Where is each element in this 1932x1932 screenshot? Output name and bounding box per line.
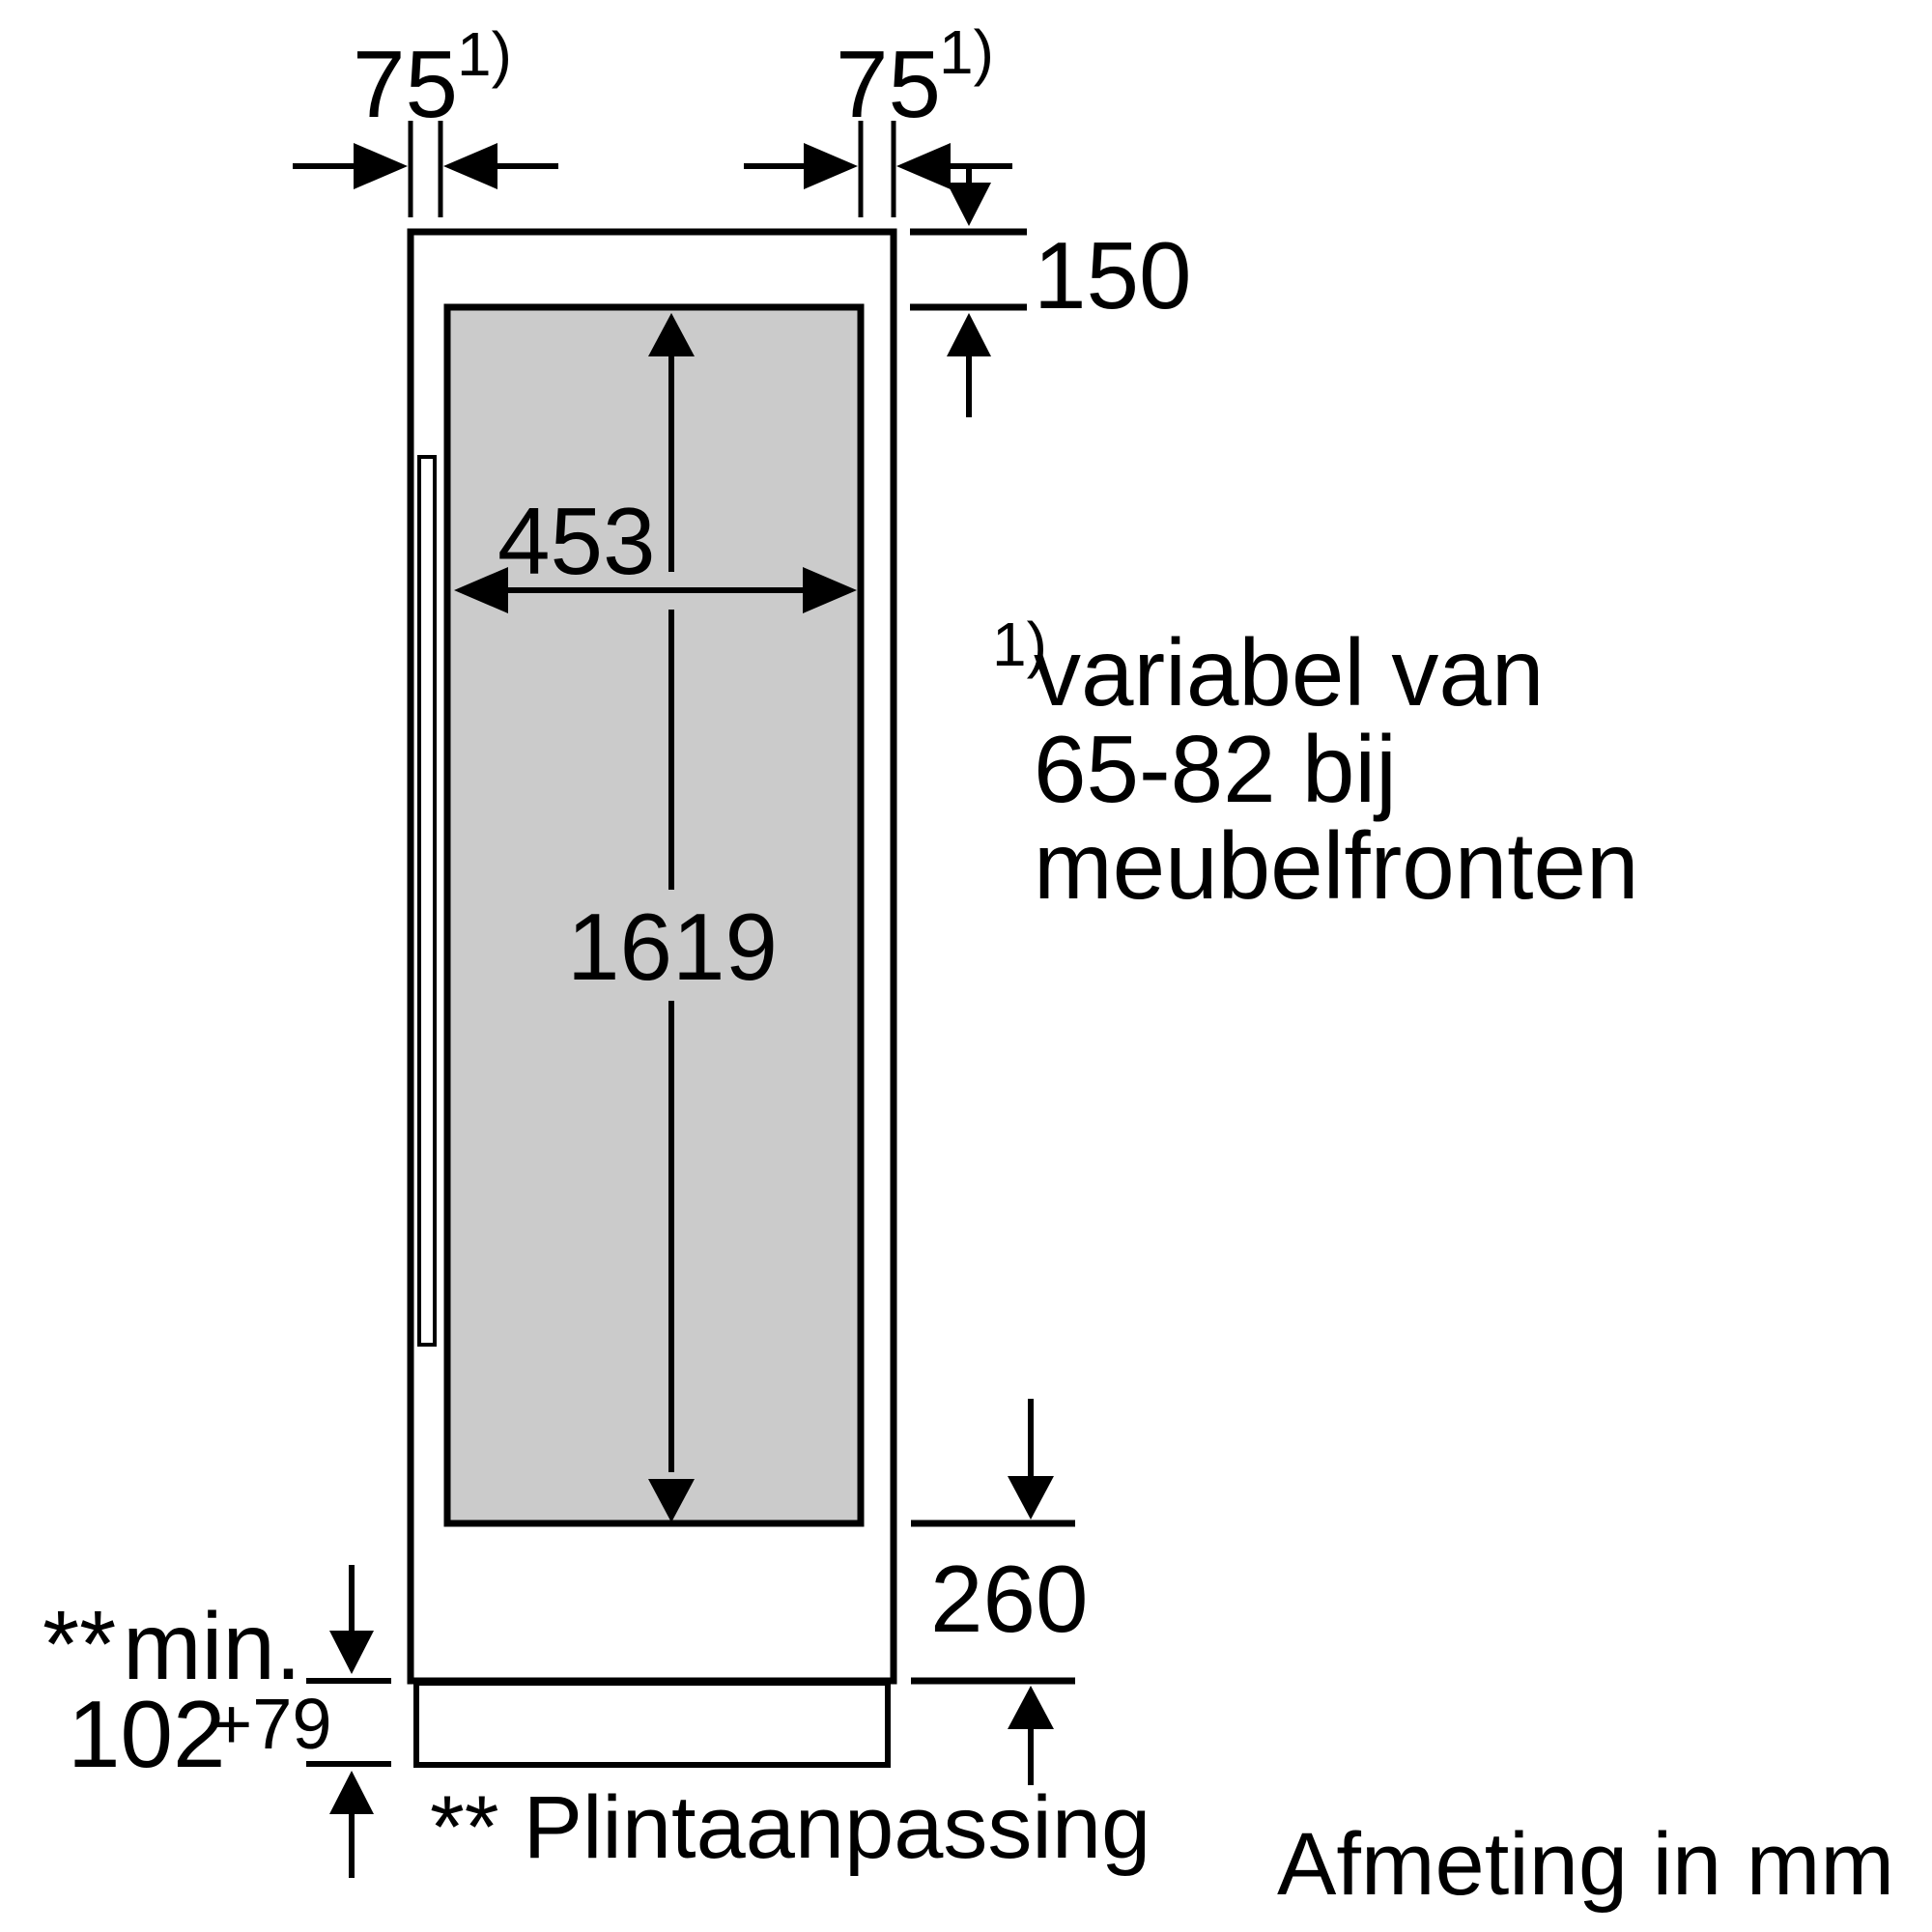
plinth-note: **Plintaanpassing xyxy=(430,1783,1151,1872)
footnote-line-1: variabel van xyxy=(1034,624,1639,721)
dim-gap-left-value: 75 xyxy=(353,37,458,131)
dim-bottom-offset-value: 260 xyxy=(930,1551,1089,1646)
appliance-installation-diagram: 75 1) 75 1) 150 453 1619 260 ** min. 102… xyxy=(0,0,1932,1932)
arrow-head-up xyxy=(1008,1686,1054,1729)
dim-gap-right-footnote-ref: 1) xyxy=(939,21,994,83)
dim-gap-left-footnote-ref: 1) xyxy=(457,23,512,85)
arrow-head-right xyxy=(354,143,408,189)
arrow-head-down xyxy=(1008,1476,1054,1520)
dim-plinth-value: 102 xyxy=(68,1687,226,1781)
arrow-head-left xyxy=(443,143,497,189)
arrow-head-up xyxy=(329,1771,374,1814)
dim-top-offset-graphics xyxy=(910,166,1027,417)
dim-plinth-tolerance: +79 xyxy=(211,1689,332,1760)
plinth-outline xyxy=(416,1683,888,1765)
dim-plinth-label: min. xyxy=(123,1599,301,1693)
arrow-head-down xyxy=(329,1631,374,1674)
dim-plinth-marker: ** xyxy=(43,1597,116,1691)
footnote-line-2: 65-82 bij xyxy=(1034,721,1639,817)
plinth-note-text: Plintaanpassing xyxy=(524,1778,1151,1877)
arrow-head-left xyxy=(896,143,951,189)
arrow-head-down xyxy=(947,183,991,226)
footnote-text: variabel van 65-82 bij meubelfronten xyxy=(1034,624,1639,914)
door-handle xyxy=(419,457,435,1345)
dim-top-offset-value: 150 xyxy=(1034,228,1192,323)
arrow-head-up xyxy=(947,313,991,356)
dim-gap-right-value: 75 xyxy=(836,37,941,131)
plinth-note-marker: ** xyxy=(430,1778,499,1877)
units-note: Afmeting in mm xyxy=(1277,1820,1894,1909)
dim-door-width-value: 453 xyxy=(497,494,656,588)
dim-door-height-value: 1619 xyxy=(567,899,778,994)
arrow-head-right xyxy=(804,143,858,189)
footnote-line-3: meubelfronten xyxy=(1034,817,1639,914)
